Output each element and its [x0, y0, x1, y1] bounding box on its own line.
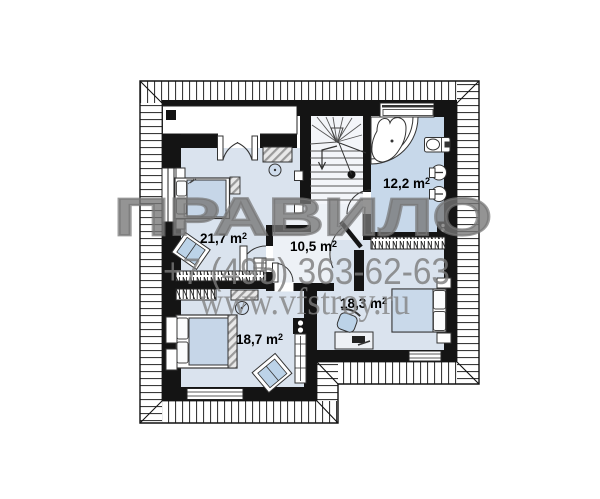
svg-text:www.vfstroy.ru: www.vfstroy.ru	[199, 281, 410, 323]
svg-text:18,7 m2: 18,7 m2	[236, 332, 283, 347]
svg-text:ПРАВИЛО: ПРАВИЛО	[114, 188, 492, 247]
